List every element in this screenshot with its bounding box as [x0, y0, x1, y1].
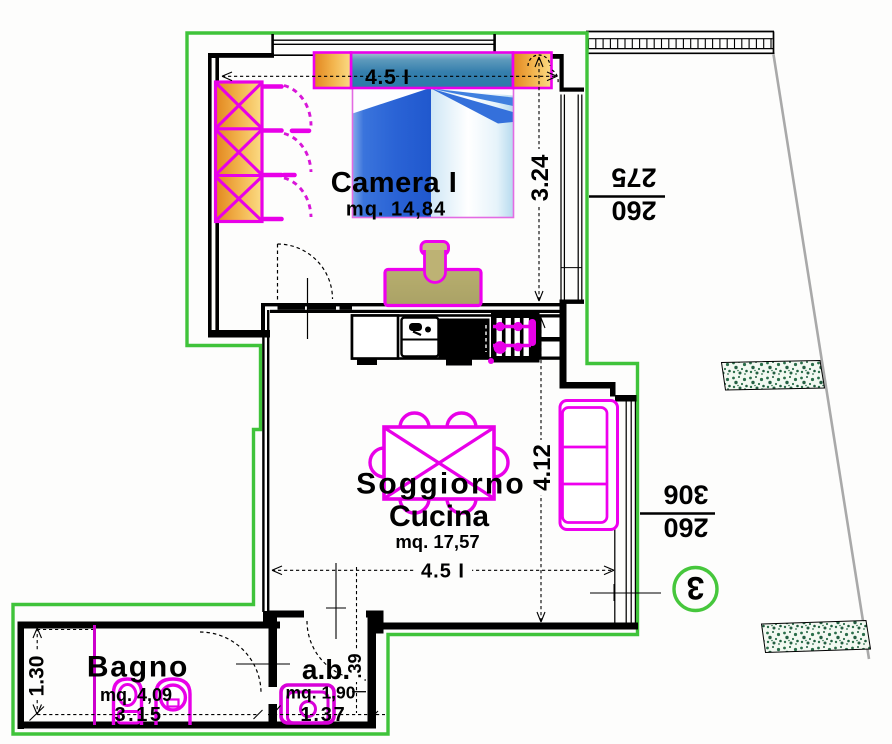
svg-text:mq. 17,57: mq. 17,57 — [395, 531, 479, 552]
svg-text:mq. 4,09: mq. 4,09 — [100, 685, 172, 705]
svg-text:3.24: 3.24 — [527, 154, 554, 201]
svg-text:275: 275 — [611, 163, 656, 193]
svg-text:4.12: 4.12 — [529, 444, 556, 491]
svg-text:260: 260 — [611, 196, 656, 226]
svg-text:a.b.: a.b. — [302, 654, 350, 685]
svg-text:mq. 1,90: mq. 1,90 — [285, 683, 355, 703]
svg-text:Camera I: Camera I — [331, 167, 458, 199]
svg-text:Soggiorno: Soggiorno — [356, 468, 526, 501]
svg-text:Bagno: Bagno — [87, 651, 189, 684]
svg-text:4.5 I: 4.5 I — [365, 66, 410, 89]
svg-text:3: 3 — [687, 570, 705, 606]
svg-text:mq. 14,84: mq. 14,84 — [346, 199, 446, 221]
svg-text:4.5 I: 4.5 I — [421, 561, 465, 583]
svg-text:260: 260 — [663, 513, 708, 543]
svg-text:306: 306 — [663, 480, 708, 510]
svg-text:1.37: 1.37 — [300, 704, 346, 726]
svg-text:3.15: 3.15 — [115, 704, 164, 726]
svg-text:Cucina: Cucina — [389, 500, 489, 533]
svg-text:1.30: 1.30 — [26, 656, 49, 697]
